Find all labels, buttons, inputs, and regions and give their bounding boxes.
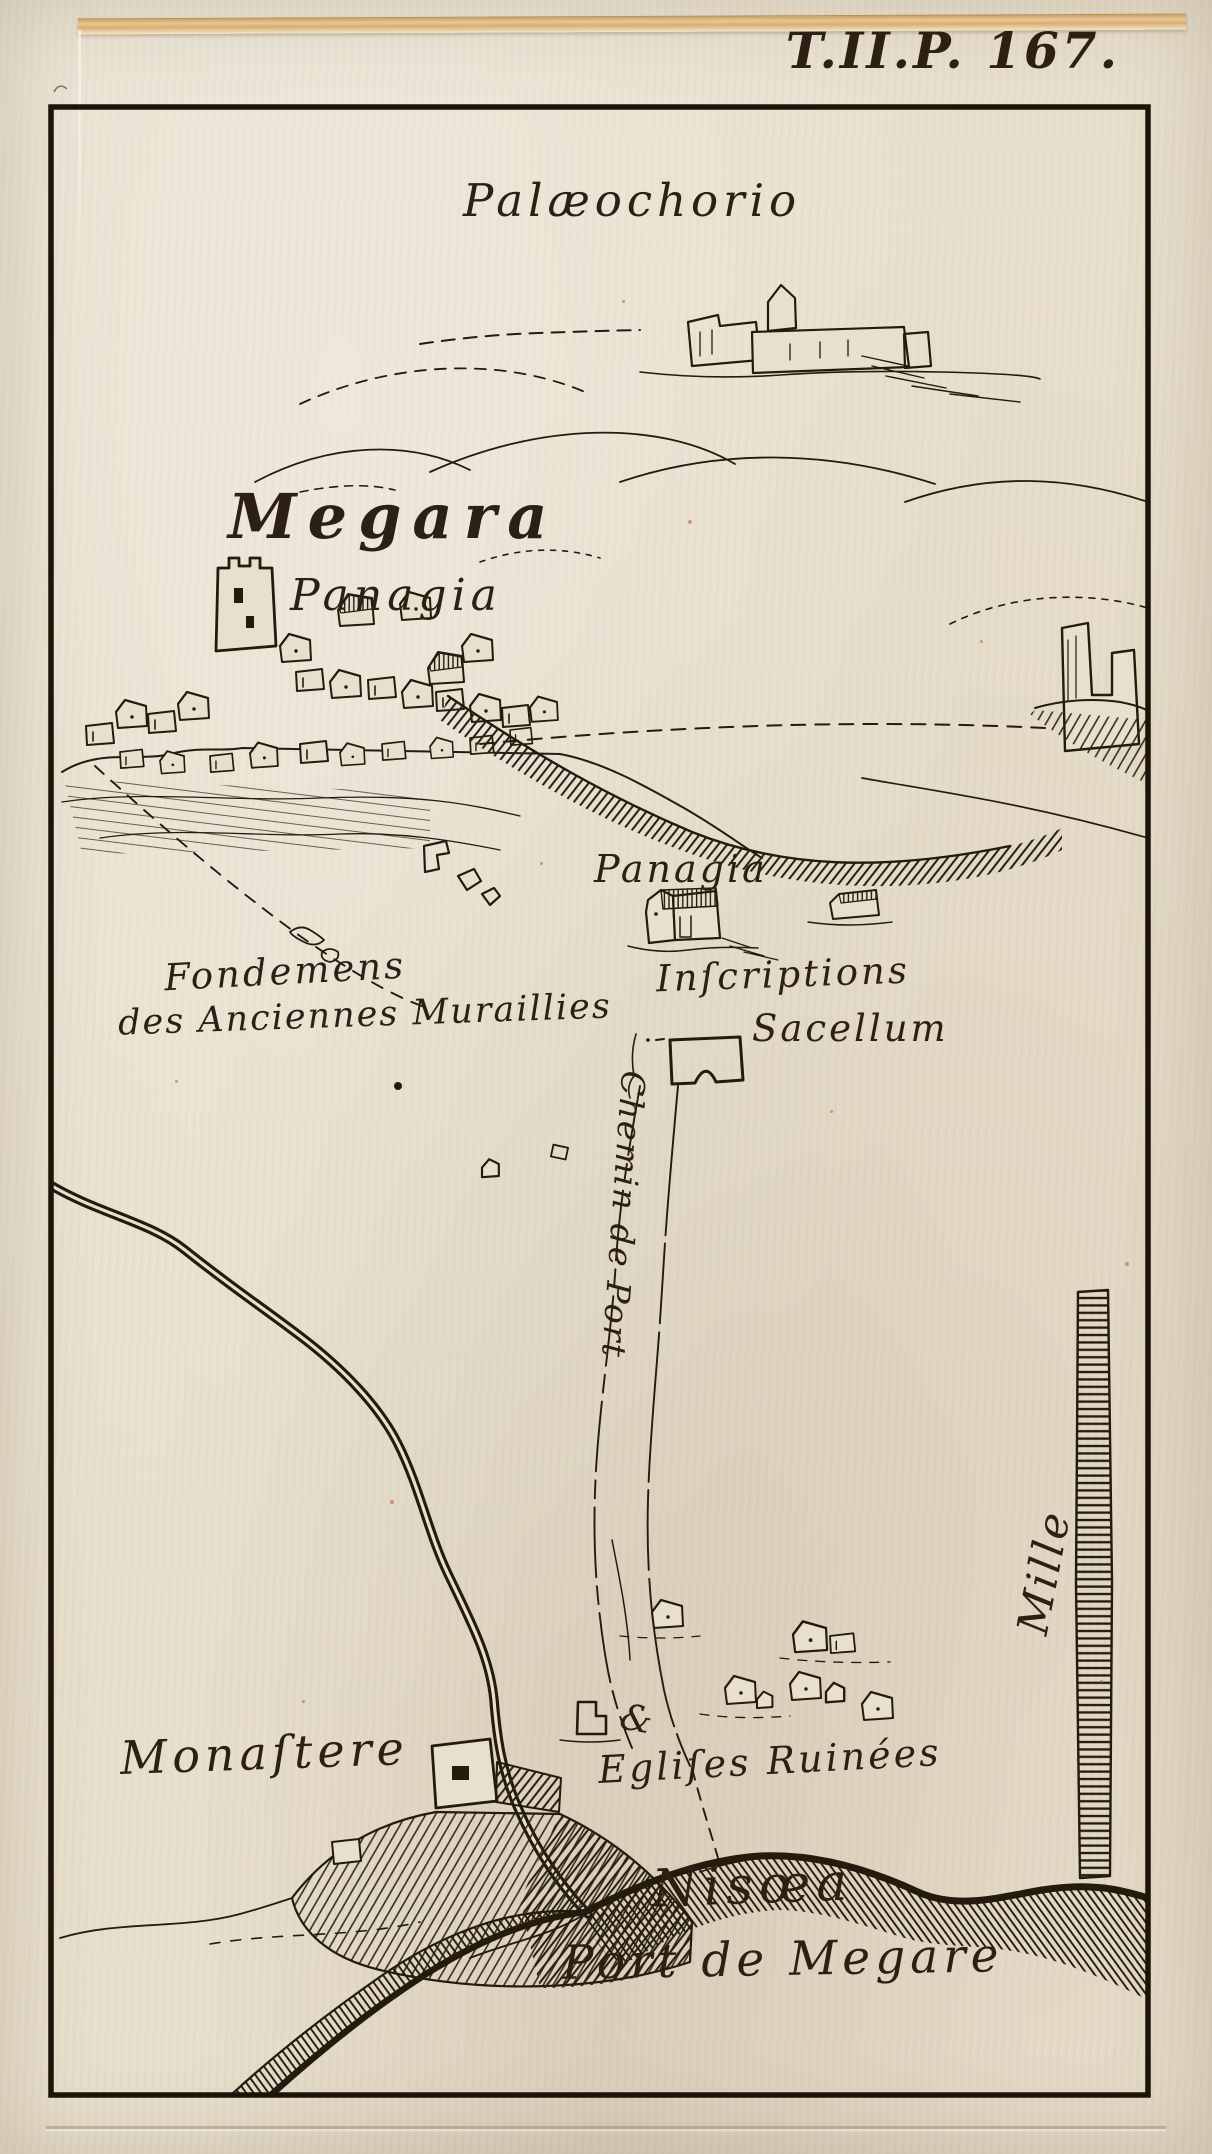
small-house-drawing: [808, 890, 892, 925]
panagia-chapel-drawing: [628, 888, 778, 960]
megara-tower: [216, 558, 276, 651]
roadside-buildings: [482, 1145, 568, 1178]
paper-fleck: [302, 1700, 305, 1703]
ruined-churches: [560, 1540, 893, 1742]
label-monastere: Monaſtere: [119, 1725, 409, 1781]
pencil-mark: [54, 86, 67, 92]
scale-bar: [1076, 1290, 1112, 1878]
map-engraving: [0, 0, 1212, 2154]
label-panagia-town: Panagia: [290, 574, 502, 618]
tower-ruin-right: [862, 623, 1148, 838]
palaeochorio-buildings: [420, 285, 1040, 402]
label-port-de-megare: Port de Megare: [562, 1932, 1004, 1987]
paper-fleck: [622, 300, 625, 303]
paper-fleck: [980, 640, 983, 643]
ampersand-mark: &: [617, 1699, 655, 1740]
paper-fleck: [175, 1080, 178, 1083]
paper-fleck: [390, 1500, 394, 1504]
label-nisaea: Nisœa: [651, 1857, 854, 1916]
label-panagia-chapel: Panagia: [594, 850, 768, 888]
label-palaeochorio: Palæochorio: [463, 178, 801, 223]
label-megara: Megara: [228, 486, 558, 548]
paper-fleck: [1100, 1680, 1103, 1683]
paper-fleck: [660, 1882, 663, 1885]
paper-fleck: [830, 1110, 833, 1113]
label-sacellum: Sacellum: [752, 1010, 949, 1047]
scanned-page: T.II.P. 167. Palæochorio Megara Panagia …: [0, 0, 1212, 2154]
plate-reference: T.II.P. 167.: [700, 26, 1120, 76]
paper-fleck: [1125, 1262, 1129, 1266]
map-frame: [51, 107, 1148, 2095]
label-inscriptions: Inſcriptions: [655, 952, 910, 998]
paper-fleck: [540, 862, 543, 865]
paper-fleck: [688, 520, 692, 524]
